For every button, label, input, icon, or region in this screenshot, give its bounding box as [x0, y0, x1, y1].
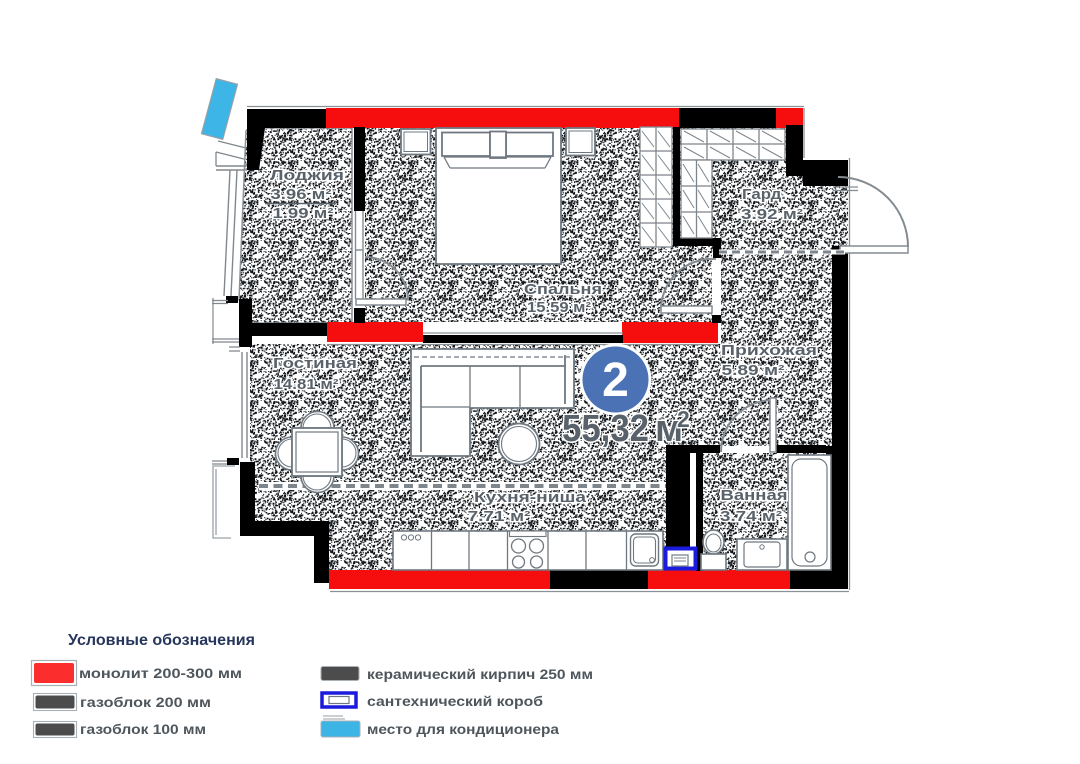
svg-text:3.96 м²: 3.96 м² [271, 187, 332, 203]
svg-text:Условные обозначения: Условные обозначения [68, 632, 255, 649]
svg-text:15.59 м²: 15.59 м² [527, 300, 591, 316]
svg-text:1.99 м²: 1.99 м² [273, 206, 334, 222]
svg-text:Гард.: Гард. [742, 186, 786, 203]
svg-text:сантехнический короб: сантехнический короб [367, 694, 543, 709]
svg-text:газоблок 200 мм: газоблок 200 мм [80, 695, 211, 710]
svg-text:7.71 м²: 7.71 м² [468, 509, 531, 525]
svg-text:место для кондиционера: место для кондиционера [367, 722, 560, 737]
svg-text:Лоджия: Лоджия [270, 167, 344, 184]
svg-text:2: 2 [677, 406, 690, 432]
svg-text:монолит 200-300 мм: монолит 200-300 мм [79, 666, 242, 681]
svg-text:2: 2 [602, 354, 629, 407]
svg-text:газоблок 100 мм: газоблок 100 мм [80, 722, 206, 737]
svg-text:14.81 м²: 14.81 м² [274, 377, 339, 393]
svg-text:5.89 м²: 5.89 м² [722, 363, 785, 379]
svg-text:Гостиная: Гостиная [273, 355, 357, 372]
svg-text:Спальня: Спальня [524, 281, 602, 298]
svg-text:Ванная: Ванная [721, 487, 788, 504]
svg-text:55,32: 55,32 [562, 408, 649, 450]
svg-text:керамический кирпич 250 мм: керамический кирпич 250 мм [367, 667, 593, 682]
svg-text:Прихожая: Прихожая [721, 342, 817, 359]
svg-text:3.74 м²: 3.74 м² [720, 509, 782, 525]
svg-text:3.92 м²: 3.92 м² [741, 207, 803, 223]
svg-text:Кухня-ниша: Кухня-ниша [474, 489, 587, 506]
